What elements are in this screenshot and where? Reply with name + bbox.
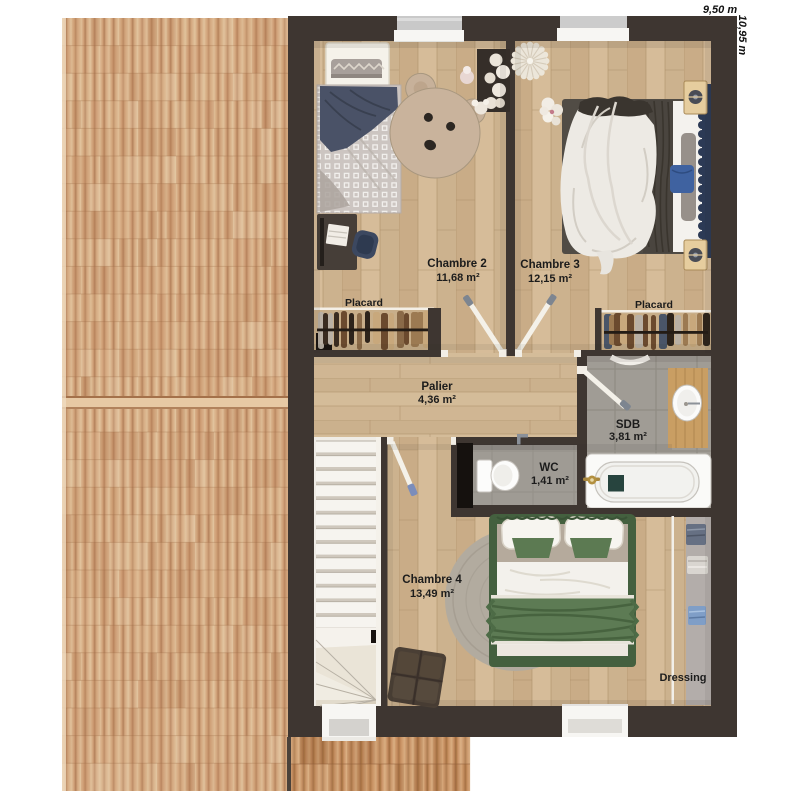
svg-text:10,95 m: 10,95 m (736, 15, 748, 56)
svg-text:13,49 m²: 13,49 m² (410, 588, 454, 600)
svg-text:4,36 m²: 4,36 m² (418, 394, 456, 406)
svg-text:Chambre 2: Chambre 2 (427, 258, 486, 270)
svg-text:SDB: SDB (616, 419, 640, 431)
svg-text:Palier: Palier (421, 381, 453, 393)
svg-text:WC: WC (539, 462, 558, 474)
svg-text:11,68 m²: 11,68 m² (436, 272, 480, 284)
svg-text:Placard: Placard (345, 297, 383, 309)
svg-text:9,50 m: 9,50 m (703, 4, 737, 16)
svg-text:3,81 m²: 3,81 m² (609, 431, 647, 443)
svg-text:Dressing: Dressing (659, 672, 706, 684)
svg-text:Chambre 4: Chambre 4 (402, 574, 462, 586)
svg-text:1,41 m²: 1,41 m² (531, 475, 569, 487)
svg-text:Placard: Placard (635, 299, 673, 311)
svg-text:Chambre 3: Chambre 3 (520, 259, 579, 271)
svg-text:12,15 m²: 12,15 m² (528, 273, 572, 285)
